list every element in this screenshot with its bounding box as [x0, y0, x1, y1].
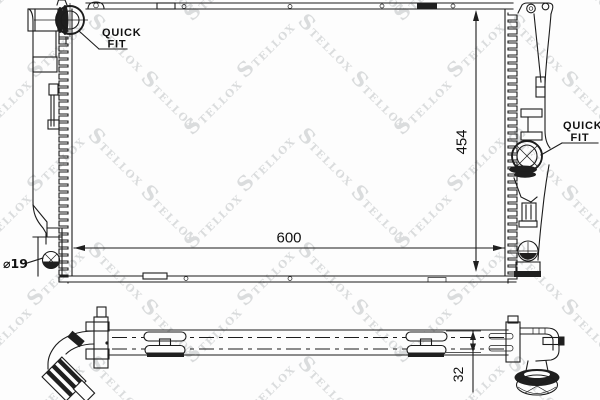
watermark-text: STELLOX	[179, 71, 247, 139]
stellox-watermark: STELLOXSTELLOXSTELLOXSTELLOXSTELLOXSTELL…	[0, 0, 600, 400]
quick-fit-right-line1: QUICK	[563, 120, 600, 132]
watermark-text: STELLOX	[389, 71, 457, 139]
watermark-text: STELLOX	[83, 237, 151, 305]
leader-line	[27, 258, 43, 263]
arrowhead-up	[470, 331, 476, 340]
watermark-text: STELLOX	[556, 294, 600, 362]
watermark-text: STELLOX	[0, 71, 37, 139]
quick-fit-label-right: QUICK FIT	[541, 120, 600, 155]
diameter-label: ⌀19	[3, 256, 43, 271]
mounting-foot-right	[514, 271, 541, 277]
drain-diameter-value: ⌀19	[3, 256, 28, 271]
watermark-text: STELLOX	[179, 0, 247, 26]
dimension-32: 32	[446, 331, 481, 392]
watermark-text: STELLOX	[179, 299, 247, 367]
watermark-text: STELLOX	[0, 299, 37, 367]
radiator-technical-drawing: STELLOXSTELLOXSTELLOXSTELLOXSTELLOXSTELL…	[0, 0, 600, 400]
watermark-text: STELLOX	[293, 351, 361, 400]
drain-plug-left	[43, 252, 60, 269]
drain-plug-right	[518, 241, 538, 261]
watermark-text: STELLOX	[293, 237, 361, 305]
left-serrated-edge	[59, 30, 68, 283]
quick-fit-label-left: QUICK FIT	[79, 27, 141, 51]
top-header	[86, 3, 513, 10]
dimension-600: 600	[74, 230, 504, 252]
watermark-text: STELLOX	[232, 356, 300, 400]
watermark-text: STELLOX	[83, 123, 151, 191]
watermark-text: STELLOX	[556, 180, 600, 248]
arrowhead-down	[470, 344, 476, 353]
bottom-bump	[143, 273, 167, 279]
watermark-text: STELLOX	[0, 185, 37, 253]
watermark-text: STELLOX	[293, 9, 361, 77]
thickness-dimension-value: 32	[450, 367, 466, 383]
watermark-text: STELLOX	[556, 0, 600, 20]
leader-line	[541, 143, 562, 155]
height-dimension-value: 454	[454, 129, 471, 154]
quick-fit-left-line1: QUICK	[102, 27, 141, 39]
top-bump	[157, 3, 175, 9]
watermark-text: STELLOX	[293, 123, 361, 191]
width-dimension-value: 600	[276, 230, 301, 247]
watermark-text: STELLOX	[22, 128, 90, 196]
top-bracket	[417, 3, 437, 9]
watermark-text: STELLOX	[389, 185, 457, 253]
side-bracket	[49, 84, 58, 95]
quick-fit-right-line2: FIT	[571, 132, 590, 144]
arrowhead-up	[473, 10, 479, 21]
watermark-text: STELLOX	[179, 185, 247, 253]
watermark-text: STELLOX	[232, 14, 300, 82]
watermark-text: STELLOX	[232, 128, 300, 196]
